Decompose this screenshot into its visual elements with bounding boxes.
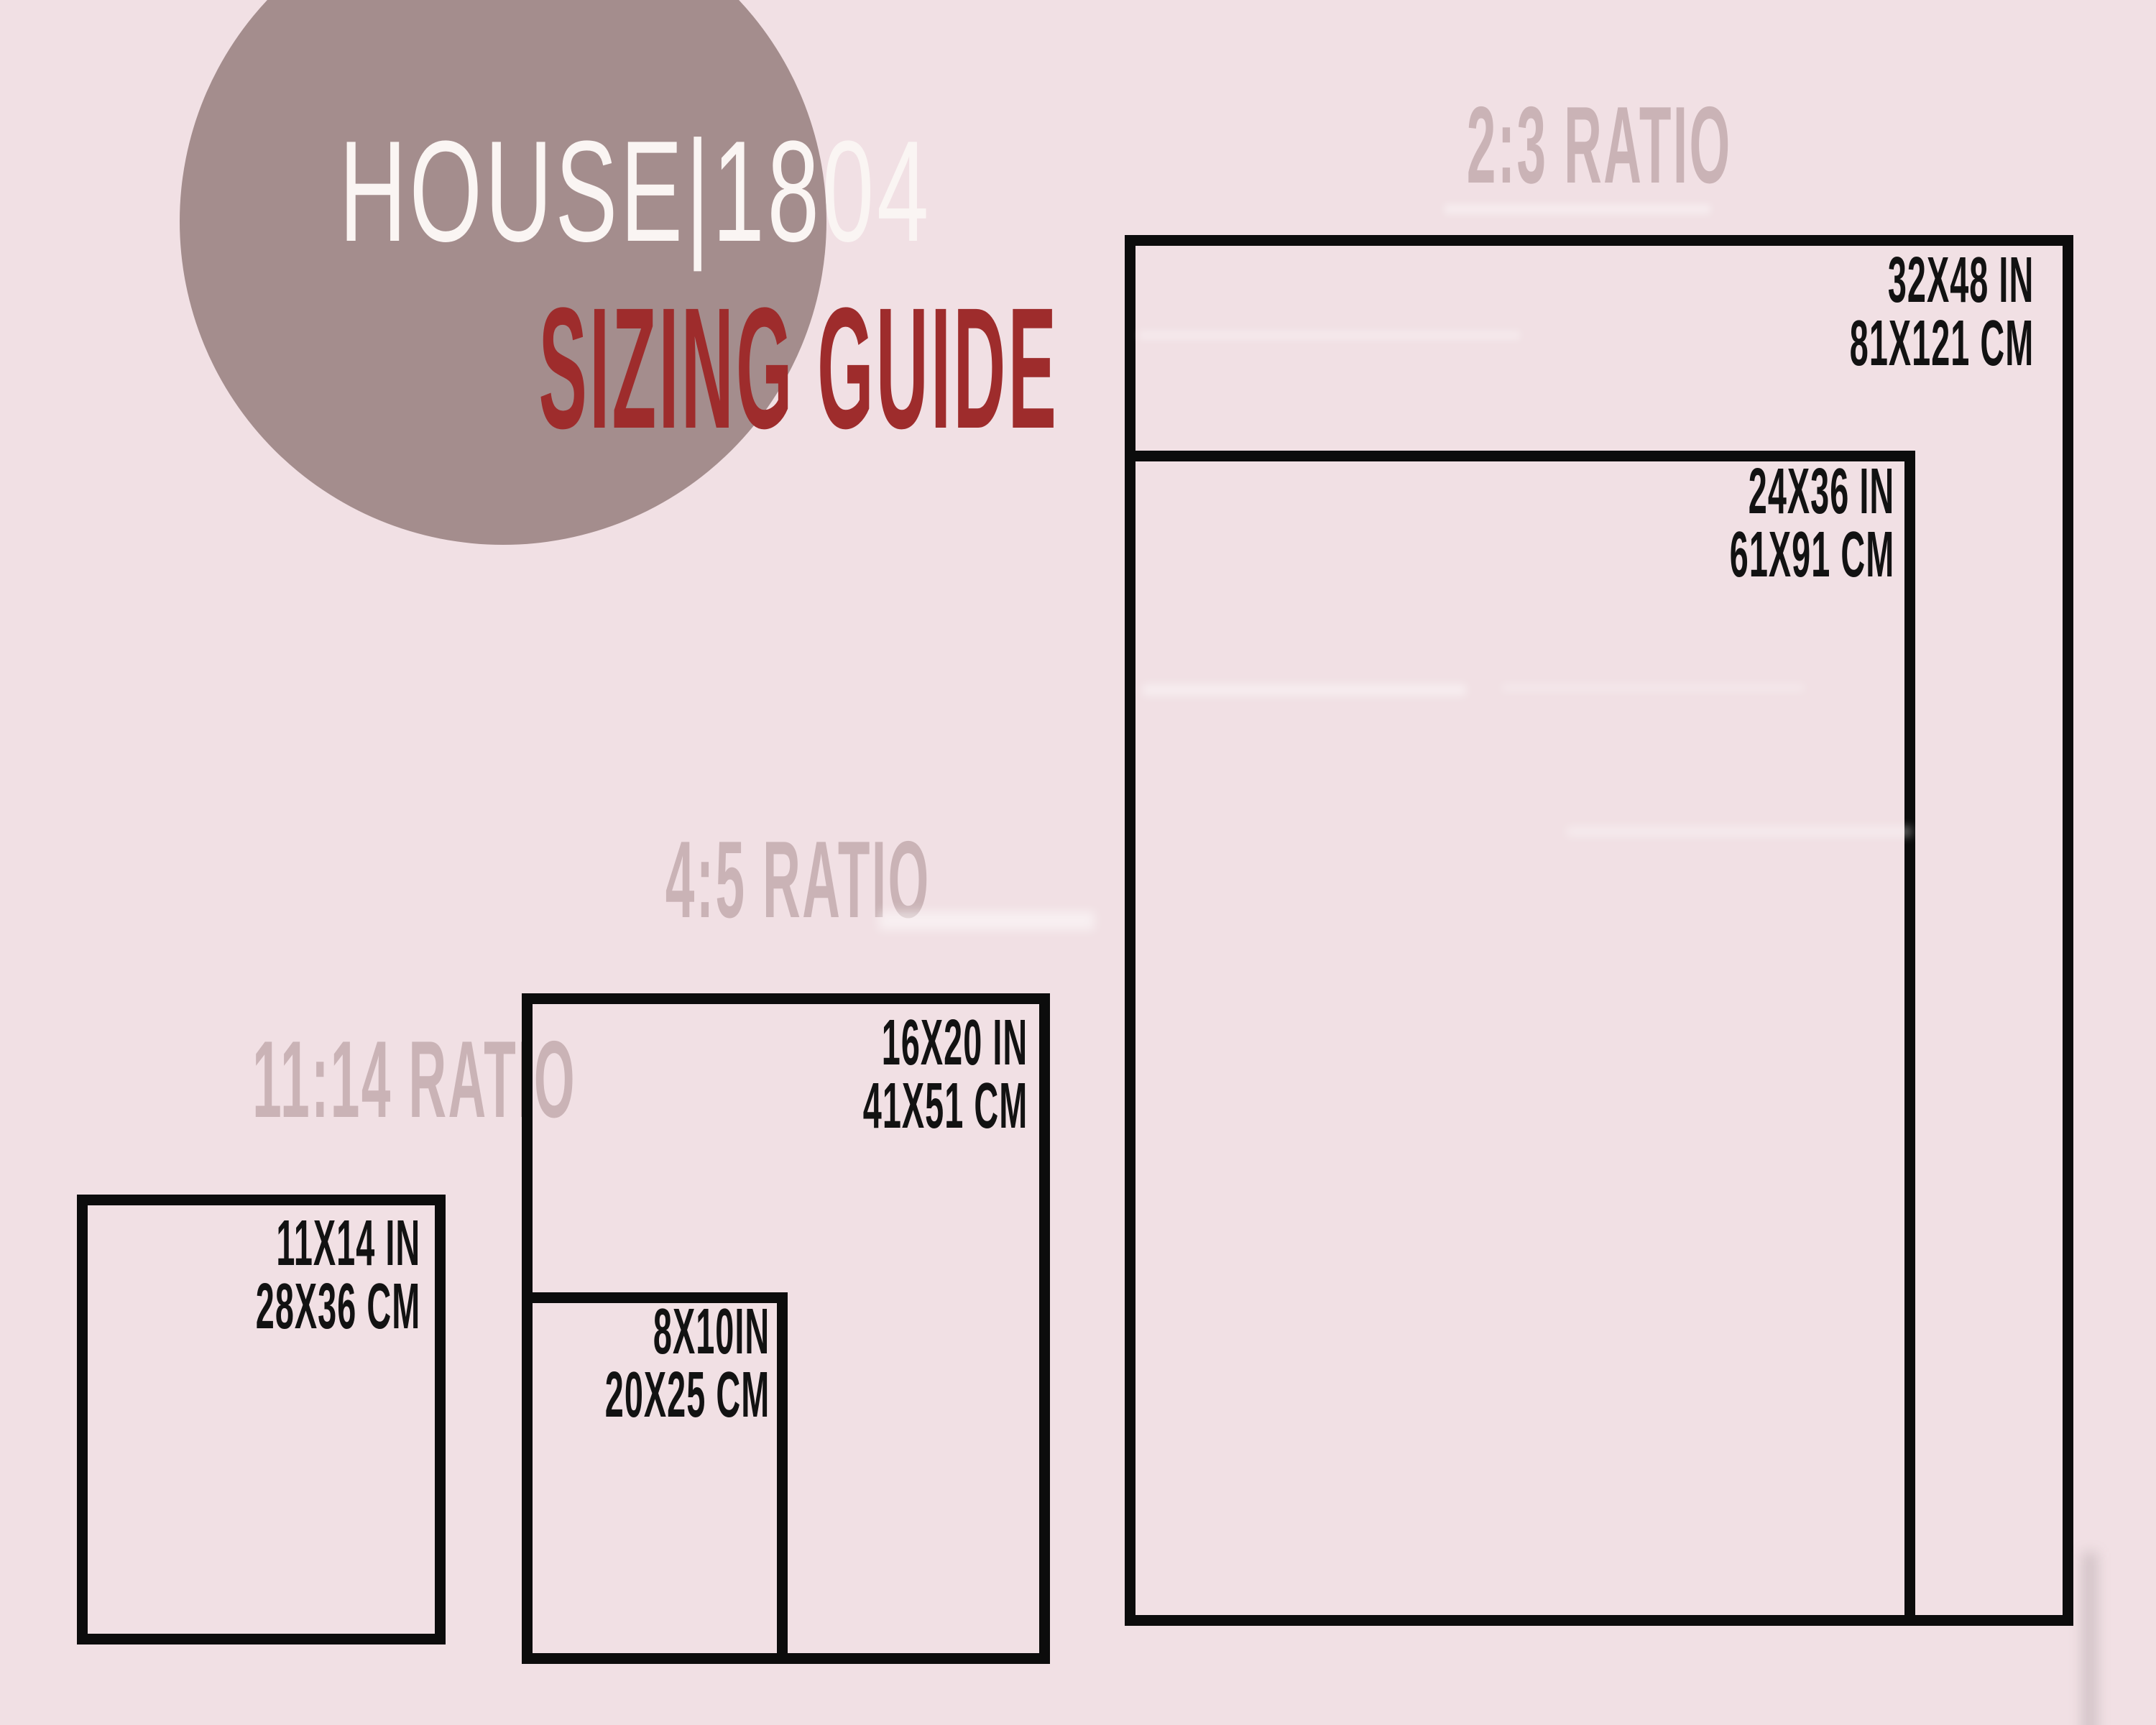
ratio-heading-2-3: 2:3 RATIO [1125,83,2073,208]
size-box-24x36: 24X36 IN 61X91 CM [1125,451,1915,1626]
size-label-8x10-inches: 8X10IN [605,1300,770,1363]
size-label-24x36: 24X36 IN 61X91 CM [1730,460,1894,586]
brand-name-text: HOUSE|1804 [339,109,931,275]
artifact-smudge [2083,1552,2097,1725]
size-label-16x20-cm: 41X51 CM [863,1075,1028,1138]
size-label-24x36-cm: 61X91 CM [1730,523,1894,586]
size-label-11x14-cm: 28X36 CM [256,1275,420,1338]
poster-title: SIZING GUIDE [180,269,826,467]
ratio-heading-4-5: 4:5 RATIO [522,817,1050,943]
size-label-24x36-inches: 24X36 IN [1730,460,1894,523]
ratio-heading-4-5-text: 4:5 RATIO [665,817,931,943]
size-label-32x48: 32X48 IN 81X121 CM [1849,249,2034,375]
sizing-guide-poster: HOUSE|1804 SIZING GUIDE 2:3 RATIO 4:5 RA… [0,0,2156,1725]
size-label-11x14-inches: 11X14 IN [256,1212,420,1275]
poster-title-text: SIZING GUIDE [539,269,1059,467]
size-box-8x10: 8X10IN 20X25 CM [522,1292,788,1664]
size-label-11x14: 11X14 IN 28X36 CM [256,1212,420,1338]
size-label-32x48-cm: 81X121 CM [1849,312,2034,375]
ratio-heading-2-3-text: 2:3 RATIO [1467,83,1732,208]
brand-name: HOUSE|1804 [180,109,826,275]
size-box-11x14: 11X14 IN 28X36 CM [77,1195,446,1644]
ratio-heading-11-14: 11:14 RATIO [77,1017,446,1143]
size-label-16x20-inches: 16X20 IN [863,1011,1028,1075]
size-label-16x20: 16X20 IN 41X51 CM [863,1011,1028,1138]
size-label-32x48-inches: 32X48 IN [1849,249,2034,312]
size-label-8x10-cm: 20X25 CM [605,1363,770,1427]
size-label-8x10: 8X10IN 20X25 CM [605,1300,770,1427]
